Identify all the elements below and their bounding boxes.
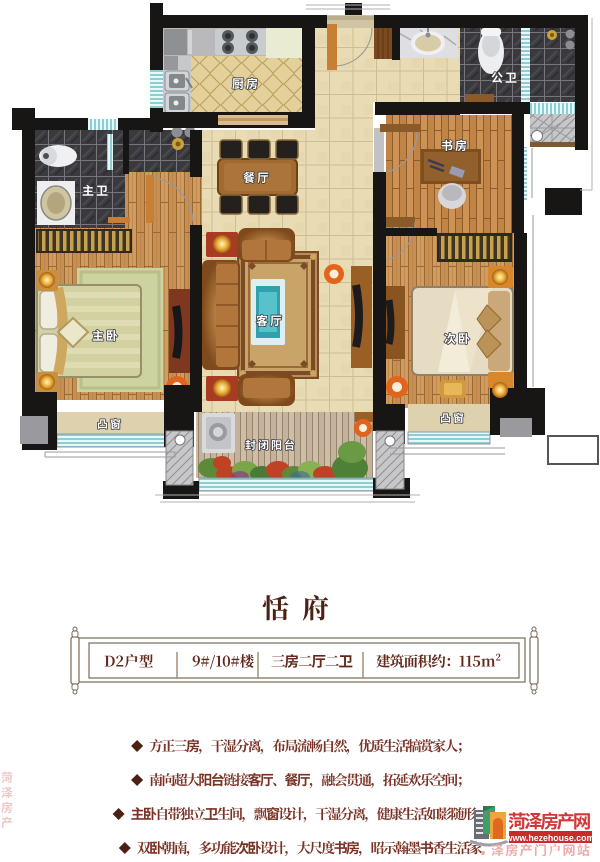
svg-text:www.hezehouse.com: www.hezehouse.com — [505, 833, 595, 843]
